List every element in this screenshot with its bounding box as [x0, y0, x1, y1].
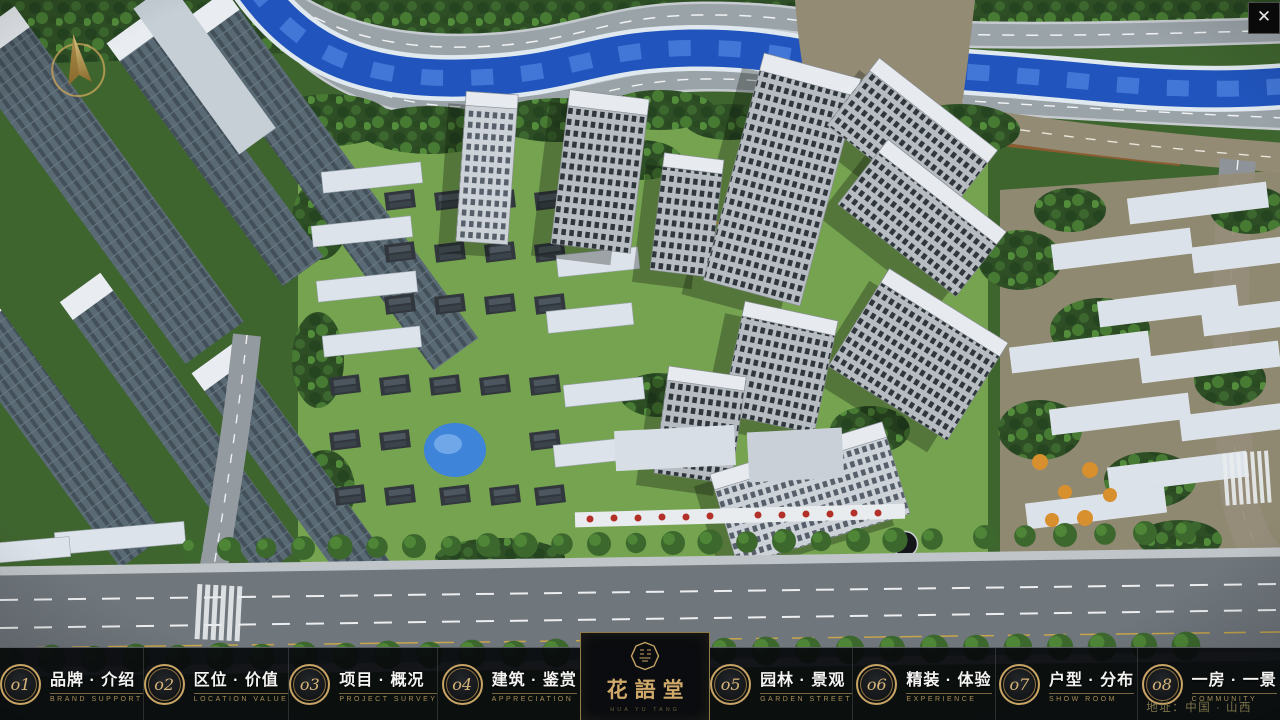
nav-item-architecture[interactable]: o4 建筑 · 鉴赏 APPRECIATION: [437, 648, 580, 720]
nav-label-en: GARDEN STREET: [760, 693, 852, 703]
nav-label-en: APPRECIATION: [492, 693, 577, 703]
brand-logo-panel[interactable]: 花語堂 HUA YU TANG: [580, 632, 710, 720]
project-address: 地址：中国 · 山西: [1146, 699, 1252, 715]
nav-label-en: SHOW ROOM: [1049, 693, 1134, 703]
nav-label-en: BRAND SUPPORT: [50, 693, 143, 703]
bottom-navbar: o1 品牌 · 介绍 BRAND SUPPORT o2 区位 · 价值 LOCA…: [0, 647, 1280, 720]
nav-item-floorplans[interactable]: o7 户型 · 分布 SHOW ROOM: [995, 648, 1138, 720]
brand-name-en: HUA YU TANG: [610, 707, 680, 713]
close-button[interactable]: ✕: [1248, 2, 1280, 34]
nav-number-badge: o1: [0, 664, 41, 705]
brand-name: 花語堂: [600, 674, 691, 704]
nav-item-project[interactable]: o3 项目 · 概况 PROJECT SURVEY: [288, 648, 437, 720]
nav-item-brand[interactable]: o1 品牌 · 介绍 BRAND SUPPORT: [0, 648, 143, 720]
nav-label-cn: 园林 · 景观: [760, 666, 852, 690]
brand-seal-icon: [630, 641, 660, 671]
nav-label-cn: 户型 · 分布: [1049, 666, 1134, 690]
nav-label-cn: 建筑 · 鉴赏: [492, 666, 577, 690]
masterplan-render: [0, 0, 1280, 720]
nav-number-badge: o2: [144, 664, 185, 705]
nav-number-badge: o4: [442, 664, 483, 705]
nav-number-badge: o6: [856, 664, 897, 705]
nav-label-en: PROJECT SURVEY: [339, 693, 437, 703]
presentation-app: ✕ o1 品牌 · 介绍 BRAND SUPPORT o2 区位 · 价值 LO…: [0, 0, 1280, 720]
nav-label-cn: 精装 · 体验: [906, 666, 991, 690]
vignette: [0, 0, 1280, 720]
nav-label-cn: 区位 · 价值: [194, 666, 289, 690]
nav-item-interior[interactable]: o6 精装 · 体验 EXPERIENCE: [852, 648, 995, 720]
compass-icon: [40, 28, 116, 108]
nav-label-cn: 项目 · 概况: [339, 666, 437, 690]
nav-label-en: LOCATION VALUE: [194, 693, 289, 703]
nav-number-badge: o5: [710, 664, 751, 705]
nav-label-cn: 一房 · 一景: [1192, 666, 1277, 690]
nav-number-badge: o3: [289, 664, 330, 705]
nav-label-cn: 品牌 · 介绍: [50, 666, 143, 690]
nav-number-badge: o7: [999, 664, 1040, 705]
nav-label-en: EXPERIENCE: [906, 693, 991, 703]
nav-item-landscape[interactable]: o5 园林 · 景观 GARDEN STREET: [710, 648, 852, 720]
nav-item-location[interactable]: o2 区位 · 价值 LOCATION VALUE: [143, 648, 289, 720]
